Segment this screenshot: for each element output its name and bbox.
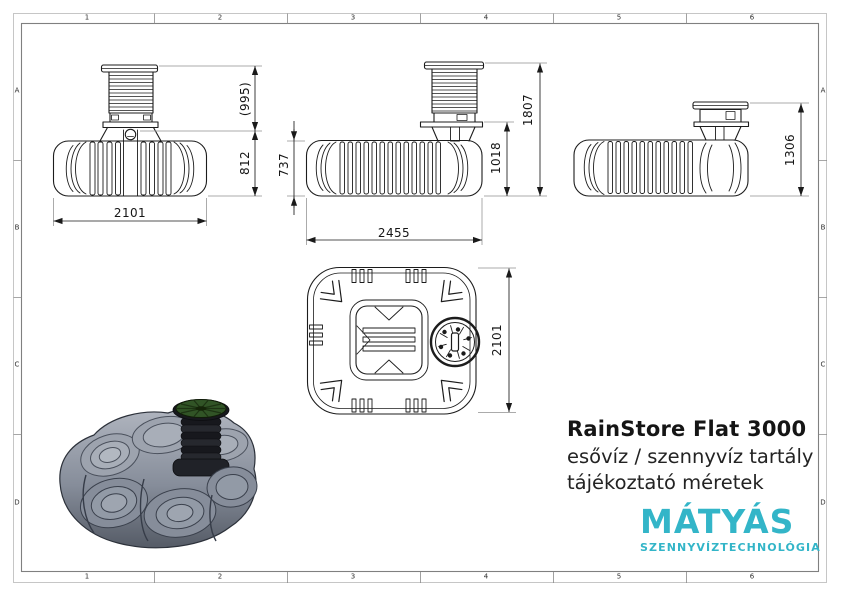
product-description-line1: esővíz / szennyvíz tartály <box>567 444 813 470</box>
side-view-dimensions <box>287 63 547 245</box>
dim-end-total-height: 1306 <box>784 134 796 166</box>
grid-col-label-top-6: 6 <box>750 15 754 22</box>
grid-col-label-bottom-1: 1 <box>85 574 89 581</box>
dim-front-width: 2101 <box>114 207 146 219</box>
dim-side-shoulder-height: 1018 <box>490 142 502 174</box>
grid-col-label-top-2: 2 <box>218 15 222 22</box>
grid-col-label-bottom-4: 4 <box>484 574 488 581</box>
end-view-drawing <box>574 102 749 196</box>
grid-col-label-top-3: 3 <box>351 15 355 22</box>
logo-tagline-text: SZENNYVÍZTECHNOLÓGIA <box>640 541 792 554</box>
dim-front-body-height: 812 <box>239 151 251 175</box>
title-block: RainStore Flat 3000 esővíz / szennyvíz t… <box>567 417 813 496</box>
end-view-dimensions <box>750 103 809 196</box>
grid-row-label-right-d: D <box>820 500 825 507</box>
grid-row-label-right-a: A <box>821 88 826 95</box>
product-name: RainStore Flat 3000 <box>567 417 813 441</box>
manhole-lid-detail <box>431 318 479 366</box>
product-description-line2: tájékoztató méretek <box>567 470 813 496</box>
top-view-drawing <box>308 268 480 415</box>
grid-col-label-bottom-6: 6 <box>750 574 754 581</box>
grid-col-label-top-1: 1 <box>85 15 89 22</box>
logo-brand-text: MÁTYÁS <box>640 503 792 540</box>
drawing-sheet: 1 2 3 4 5 6 1 2 3 4 5 6 A B C D A B C D … <box>0 0 842 596</box>
grid-col-label-bottom-5: 5 <box>617 574 621 581</box>
dim-side-total-height: 1807 <box>522 94 534 126</box>
grid-col-label-bottom-3: 3 <box>351 574 355 581</box>
dim-side-length: 2455 <box>378 227 410 239</box>
dim-side-body-height: 737 <box>278 153 290 177</box>
grid-row-label-left-b: B <box>15 225 20 232</box>
grid-row-label-left-c: C <box>15 362 20 369</box>
grid-col-label-bottom-2: 2 <box>218 574 222 581</box>
tank-3d-render <box>60 400 259 548</box>
grid-col-label-top-4: 4 <box>484 15 488 22</box>
company-logo: MÁTYÁS SZENNYVÍZTECHNOLÓGIA <box>640 503 792 554</box>
dim-top-width: 2101 <box>491 324 503 356</box>
riser-3d <box>173 400 229 477</box>
grid-row-label-right-c: C <box>821 362 826 369</box>
front-view-drawing <box>54 65 207 196</box>
dim-front-riser-height: (995) <box>239 82 251 116</box>
grid-col-label-top-5: 5 <box>617 15 621 22</box>
grid-row-label-left-a: A <box>15 88 20 95</box>
grid-row-label-left-d: D <box>14 500 19 507</box>
side-view-drawing <box>307 62 484 196</box>
grid-row-label-right-b: B <box>821 225 826 232</box>
